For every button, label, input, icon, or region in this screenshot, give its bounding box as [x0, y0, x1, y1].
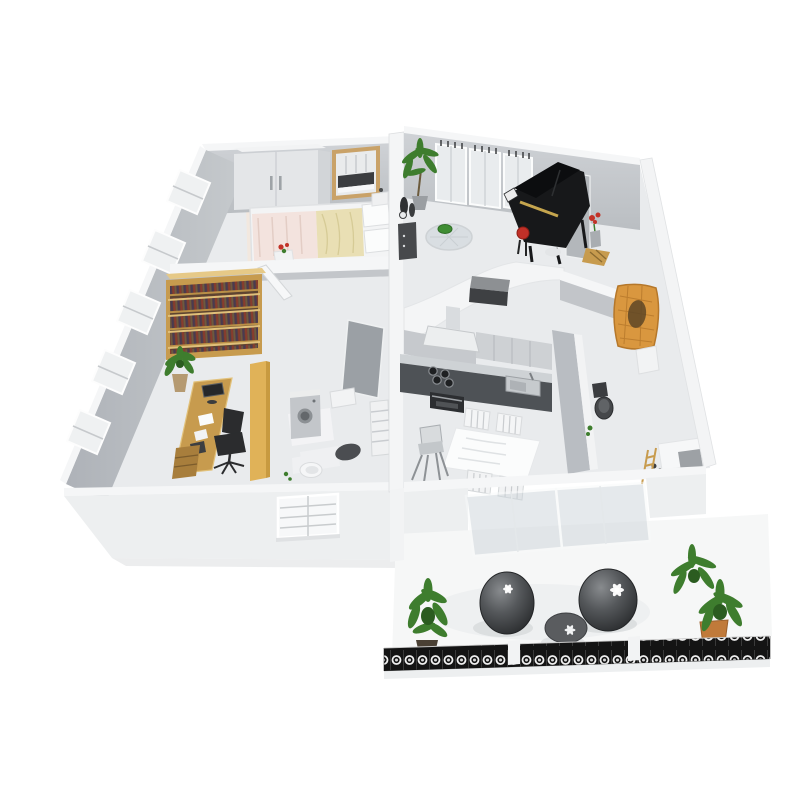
balcony-side-table	[545, 613, 587, 643]
spine-wall	[389, 132, 404, 492]
pouf-right	[579, 569, 637, 631]
front-wall-left-wing	[64, 482, 397, 568]
front-wall-face	[64, 490, 397, 560]
railing-post-1	[508, 640, 520, 665]
towel-radiator	[370, 400, 390, 456]
wardrobe	[234, 144, 330, 210]
wall-mirror	[334, 148, 378, 198]
decor-cabinet	[398, 197, 417, 260]
chair-north-1	[464, 408, 490, 430]
piano-foot	[545, 248, 561, 257]
railing-post-2	[628, 636, 640, 661]
green-bowl	[438, 225, 452, 234]
drawer-pedestal	[172, 445, 200, 479]
bathroom-door	[342, 320, 384, 398]
bookshelf	[166, 268, 266, 360]
wc-shelf	[636, 346, 659, 374]
washing-machine	[290, 389, 321, 439]
wash-basin	[330, 388, 356, 408]
floorplan-canvas: 3D isometric cutaway floor plan of an ap…	[0, 0, 800, 800]
wardrobe-handle-left	[270, 176, 273, 190]
apartment-render: 3D isometric cutaway floor plan of an ap…	[0, 0, 800, 800]
monitor	[202, 383, 224, 397]
pillow-2	[364, 228, 392, 253]
pouf-left	[480, 572, 534, 634]
wooden-door-open	[250, 361, 270, 481]
front-window	[276, 494, 340, 542]
wall-clock	[400, 212, 407, 219]
chair-north-2	[496, 413, 522, 435]
balcony-left-pillar	[390, 488, 404, 562]
right-wing	[398, 126, 716, 536]
left-wing	[60, 136, 397, 568]
wardrobe-handle-right	[279, 176, 282, 190]
green-bottle	[284, 472, 288, 476]
wicker-hanging-chair	[614, 284, 659, 349]
flower-vase	[590, 230, 601, 248]
glass-coffee-table	[426, 224, 472, 250]
